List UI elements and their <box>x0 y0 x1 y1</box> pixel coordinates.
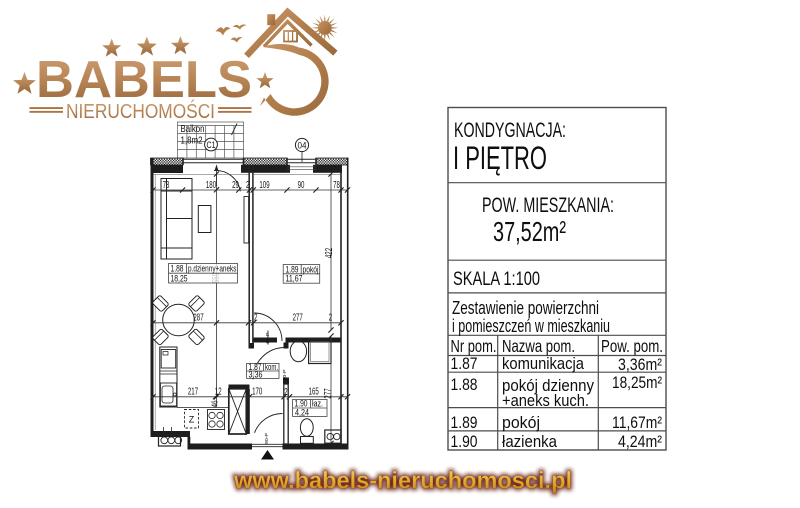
svg-text:+aneks kuch.: +aneks kuch. <box>502 391 589 410</box>
svg-text:1.88: 1.88 <box>451 375 478 394</box>
svg-text:90: 90 <box>298 179 305 191</box>
svg-text:11,67m²: 11,67m² <box>612 413 662 432</box>
svg-text:1.90: 1.90 <box>451 432 478 451</box>
svg-text:12: 12 <box>215 386 222 398</box>
svg-text:46: 46 <box>211 400 220 407</box>
svg-text:łazienka: łazienka <box>502 432 557 451</box>
svg-text:4,24: 4,24 <box>295 407 309 418</box>
svg-text:90-P: 90-P <box>265 333 270 344</box>
svg-text:2: 2 <box>329 312 332 324</box>
svg-text:277: 277 <box>322 388 334 398</box>
svg-text:170: 170 <box>252 386 262 398</box>
svg-text:NIERUCHOMOŚCI: NIERUCHOMOŚCI <box>66 99 215 123</box>
svg-text:37,52m²: 37,52m² <box>493 216 566 247</box>
svg-text:109: 109 <box>259 179 269 191</box>
svg-text:1,8m2: 1,8m2 <box>181 136 203 147</box>
svg-text:Z: Z <box>189 415 195 425</box>
svg-text:kom.: kom. <box>265 362 278 373</box>
svg-text:18,25: 18,25 <box>171 273 188 284</box>
svg-text:90-P: 90-P <box>264 433 269 444</box>
svg-text:SKALA 1:100: SKALA 1:100 <box>453 268 540 290</box>
svg-text:277: 277 <box>293 312 303 324</box>
svg-text:287: 287 <box>193 312 203 324</box>
svg-text:180: 180 <box>206 179 216 191</box>
svg-text:POW. MIESZKANIA:: POW. MIESZKANIA: <box>482 194 614 217</box>
svg-text:2: 2 <box>254 312 257 324</box>
svg-text:I PIĘTRO: I PIĘTRO <box>453 140 547 176</box>
svg-text:KONDYGNACJA:: KONDYGNACJA: <box>454 119 566 142</box>
svg-text:Zestawienie powierzchni: Zestawienie powierzchni <box>452 298 599 318</box>
svg-text:2: 2 <box>246 179 249 191</box>
svg-text:422: 422 <box>323 248 335 258</box>
svg-text:165: 165 <box>309 386 319 398</box>
svg-text:C1: C1 <box>207 140 216 150</box>
svg-text:11,67: 11,67 <box>286 274 303 285</box>
svg-text:p.dzienny+aneks: p.dzienny+aneks <box>188 263 237 274</box>
svg-text:1.87: 1.87 <box>451 354 478 373</box>
svg-text:3,36m²: 3,36m² <box>618 355 662 374</box>
svg-text:78: 78 <box>333 179 340 191</box>
svg-text:04: 04 <box>298 141 307 151</box>
svg-text:i pomieszczeń w mieszkaniu: i pomieszczeń w mieszkaniu <box>452 316 610 336</box>
svg-text:Balkon: Balkon <box>181 124 205 135</box>
svg-text:29: 29 <box>232 179 239 191</box>
svg-text:2: 2 <box>284 386 287 398</box>
svg-text:Pow. pom.: Pow. pom. <box>601 336 663 356</box>
svg-text:www.babels-nieruchomosci.pl: www.babels-nieruchomosci.pl <box>233 468 572 495</box>
svg-text:pokój: pokój <box>502 413 540 432</box>
svg-text:1.89: 1.89 <box>451 413 478 432</box>
svg-text:komunikacja: komunikacja <box>502 354 584 373</box>
svg-text:Nazwa pom.: Nazwa pom. <box>502 336 575 356</box>
svg-text:18,25m²: 18,25m² <box>612 373 662 392</box>
svg-text:3,36: 3,36 <box>249 370 263 381</box>
svg-text:80-P: 80-P <box>282 370 287 381</box>
svg-text:4,24m²: 4,24m² <box>618 432 662 451</box>
svg-text:Nr pom.: Nr pom. <box>451 336 497 356</box>
svg-text:pokój: pokój <box>303 264 319 275</box>
svg-text:78: 78 <box>163 179 170 191</box>
svg-text:217: 217 <box>188 386 198 398</box>
svg-text:łaz.: łaz. <box>312 399 323 410</box>
